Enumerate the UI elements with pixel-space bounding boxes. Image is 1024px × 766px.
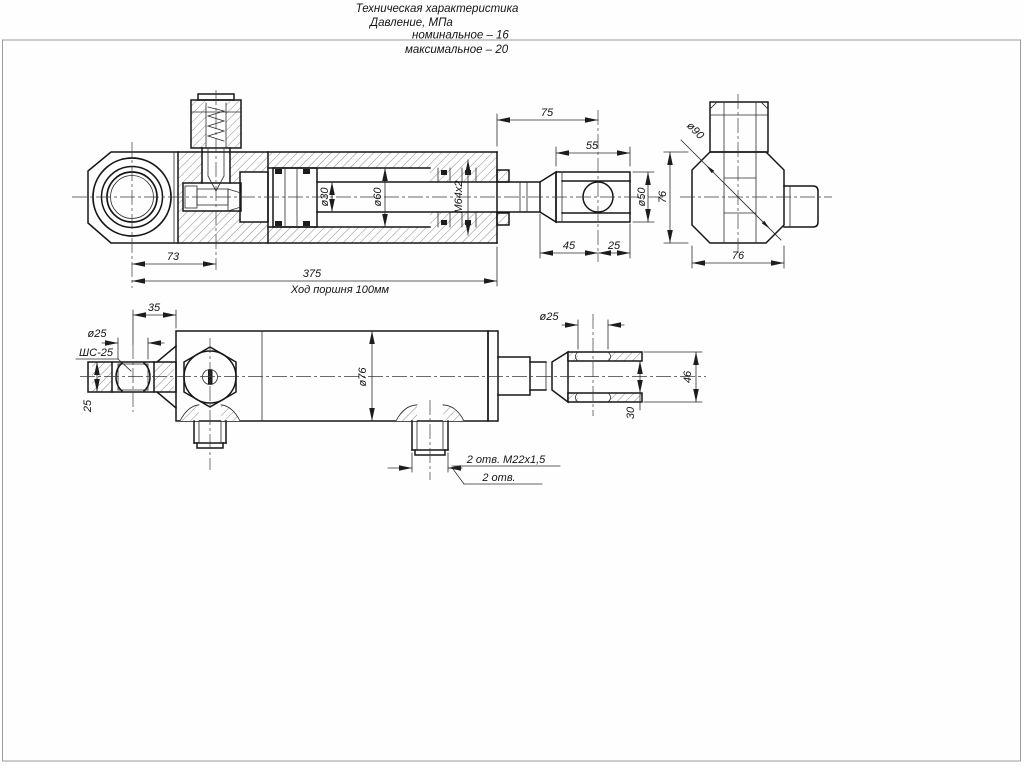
side-view: ø90 76 76 bbox=[657, 94, 832, 268]
dim-clevis-bore: ø25 bbox=[540, 311, 560, 323]
dim-diag-dia: ø90 bbox=[684, 120, 707, 143]
spec-maximal: максимальное – 20 bbox=[405, 44, 509, 56]
fork-clevis-top bbox=[552, 352, 642, 402]
spec-nominal: номинальное – 16 bbox=[412, 30, 509, 42]
dim-clevis-dia: ø50 bbox=[636, 187, 648, 207]
hex-fitting bbox=[710, 102, 768, 152]
side-stub bbox=[784, 186, 818, 227]
stroke-note: Ход поршня 100мм bbox=[290, 284, 390, 296]
dim-45: 45 bbox=[563, 240, 576, 252]
dim-25: 25 bbox=[607, 240, 621, 252]
bearing-sphere-right bbox=[144, 363, 150, 391]
dim-side-width: 76 bbox=[732, 250, 745, 262]
rod-top bbox=[498, 357, 552, 395]
engineering-drawing: Техническая характеристика Давление, МПа… bbox=[0, 0, 1024, 766]
dim-bore-dia: ø60 bbox=[372, 187, 384, 207]
rear-eye bbox=[88, 152, 178, 243]
bearing-type-label: ШС-25 bbox=[79, 347, 114, 359]
dim-side-height: 76 bbox=[657, 190, 669, 203]
drawing-sheet: Техническая характеристика Давление, МПа… bbox=[0, 0, 1024, 766]
dim-55: 55 bbox=[586, 140, 599, 152]
ports-thread-label: 2 отв. М22х1,5 bbox=[466, 454, 546, 466]
dim-rod-dia: ø30 bbox=[319, 187, 331, 207]
dim-slot-width: 30 bbox=[625, 406, 637, 419]
dim-body-dia: ø76 bbox=[357, 367, 369, 387]
dim-375: 375 bbox=[303, 268, 322, 280]
dim-75: 75 bbox=[541, 107, 554, 119]
tech-spec-block: Техническая характеристика Давление, МПа… bbox=[356, 3, 519, 56]
gland-hatch bbox=[430, 152, 497, 182]
dim-plate-thk: 25 bbox=[82, 399, 94, 413]
section-view: 75 55 45 25 ø50 ø30 ø60 M64x2 73 375 Ход… bbox=[72, 90, 664, 296]
dim-gland-thread: M64x2 bbox=[453, 180, 465, 213]
dim-35: 35 bbox=[148, 302, 161, 314]
top-view: 35 ø25 ШС-25 25 ø76 ø25 46 30 bbox=[76, 302, 706, 484]
spec-title: Техническая характеристика bbox=[356, 3, 519, 15]
page-frame bbox=[3, 40, 1021, 761]
dim-clevis-width: 46 bbox=[682, 370, 694, 383]
dim-eye-bore: ø25 bbox=[88, 328, 108, 340]
spec-pressure-label: Давление, МПа bbox=[368, 17, 453, 29]
dim-73: 73 bbox=[167, 251, 180, 263]
ports-count-label: 2 отв. bbox=[481, 472, 515, 484]
bearing-sphere-left bbox=[116, 363, 122, 391]
side-dimensions: ø90 76 76 bbox=[657, 120, 784, 268]
piston bbox=[273, 168, 317, 227]
